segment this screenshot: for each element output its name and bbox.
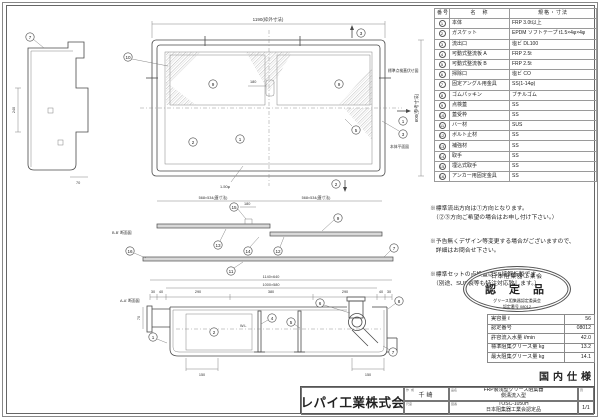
callout-11: 11 [227, 267, 235, 275]
plan-width-dim: 1190(枠外寸法) [253, 16, 284, 23]
part-spec: 塩ビ DL100 [510, 39, 597, 49]
side-view: 7 240 70 [12, 33, 88, 185]
flow-arrow-3: 3 [350, 25, 365, 38]
part-spec: SUS [510, 121, 597, 131]
flow-arrow-2: 2 [332, 180, 347, 192]
plan-view: 180 1-50φ 1190(枠外寸法) 600(参考寸法) 標準点検蓋伏せ図 … [124, 16, 424, 201]
stamp-number: 認定番号 08012 [464, 304, 570, 310]
inlet-height-dim: 70 [137, 316, 141, 320]
parts-table-row: 12 ボルト止材 SS [435, 131, 597, 141]
domestic-spec-label: 国内仕様 [470, 368, 595, 383]
parts-table-row: 14 取手 SS [435, 151, 597, 161]
body-section-label: A-A' 断面図 [120, 298, 140, 303]
part-spec: SS [510, 161, 597, 171]
lid-section-view: B-B' 断面図 180 15 13 14 12 9 16 11 7 [112, 202, 398, 275]
inner-dim: 1000×580 [263, 283, 280, 287]
svg-text:16: 16 [127, 249, 133, 254]
parts-table-row: 7 固定アングル用金具 SS(1-14φ) [435, 80, 597, 90]
callout-1-section: 1 [149, 333, 157, 341]
flow-arrow-1: 1 [397, 109, 411, 125]
part-number-badge: 2 [439, 30, 446, 37]
spec-table: 実容量 ℓ 56 認定番号 08012 許容流入水量 ℓ/min 42.0 標準… [487, 314, 595, 363]
callout-6-section: 6 [316, 299, 324, 307]
svg-text:1: 1 [239, 137, 242, 142]
part-name: ゴムパッキン [450, 90, 510, 100]
lid-dim-right: 568×534(蓋寸法) [302, 195, 332, 200]
parts-table-row: 5 可動式整流板 B FRP 2.5t [435, 59, 597, 69]
page-cell: 1/1 [578, 401, 594, 415]
svg-text:9: 9 [212, 82, 215, 87]
part-name: 埋込式取手 [450, 161, 510, 171]
part-number-badge: 6 [439, 71, 446, 78]
spec-value: 14.1 [565, 353, 595, 363]
spec-label: 実容量 ℓ [488, 315, 565, 325]
part-number-badge: 15 [439, 163, 446, 170]
product-line2: 側溝流入型 [501, 394, 526, 400]
seg-dim: 380 [268, 290, 274, 294]
part-spec: 塩ビ CO [510, 70, 597, 80]
svg-text:9: 9 [338, 82, 341, 87]
water-line-label: W.L [240, 324, 247, 328]
svg-text:10: 10 [125, 55, 131, 60]
seg-dim: 290 [195, 290, 201, 294]
right-pit-dim: 150 [365, 373, 371, 377]
parts-table-row: 2 ガスケット EPDM ソフトテープ t1.5×4φ×4φ [435, 29, 597, 39]
svg-text:7: 7 [393, 246, 396, 251]
parts-table-row: 9 点検蓋 SS [435, 100, 597, 110]
part-name: ボルト止材 [450, 131, 510, 141]
callout-10: 10 [124, 53, 132, 61]
part-spec: SS [510, 100, 597, 110]
callout-2: 2 [189, 138, 197, 146]
left-pit-dim: 150 [199, 373, 205, 377]
callout-7-side: 7 [26, 33, 34, 41]
callout-13: 13 [214, 241, 222, 249]
callout-7-section: 7 [389, 348, 397, 356]
side-depth-dim: 240 [12, 107, 16, 113]
part-number-badge: 3 [439, 41, 446, 48]
parts-table-row: 1 本体 FRP 3.0t以上 [435, 19, 597, 29]
product-name-cell: 品名 FRP製浅型グリース阻集器 側溝流入型 [449, 387, 578, 401]
outer-dim: 1140×640 [263, 275, 280, 279]
part-spec: EPDM ソフトテープ t1.5×4φ×4φ [510, 29, 597, 39]
svg-text:3: 3 [402, 132, 405, 137]
part-number-badge: 13 [439, 143, 446, 150]
callout-1: 1 [236, 135, 244, 143]
company-logo: プレパイ工業株式会社 [301, 387, 404, 415]
spec-value: 08012 [565, 324, 595, 334]
part-name: 本体 [450, 19, 510, 29]
page-number: 1/1 [582, 405, 590, 411]
svg-text:11: 11 [229, 269, 234, 274]
certification-stamp: 日本阻集器工業会 認 定 品 グリース阻集器認定委員会 認定番号 08012 [463, 266, 571, 312]
part-number-badge: 7 [439, 81, 446, 88]
seg-dim: 40 [379, 290, 383, 294]
parts-table: 番号 名 称 規格・寸法 1 本体 FRP 3.0t以上 2 ガスケット EPD… [434, 8, 597, 182]
svg-text:4: 4 [271, 316, 274, 321]
spec-value: 56 [565, 315, 595, 325]
part-number-badge: 9 [439, 102, 446, 109]
svg-text:1: 1 [402, 119, 405, 124]
svg-text:8: 8 [398, 299, 401, 304]
spec-value: 13.2 [565, 343, 595, 353]
parts-table-row: 6 掃除口 塩ビ CO [435, 70, 597, 80]
right-panel: 番号 名 称 規格・寸法 1 本体 FRP 3.0t以上 2 ガスケット EPD… [430, 8, 596, 182]
svg-text:2: 2 [192, 140, 195, 145]
spec-table-row: 実容量 ℓ 56 [488, 315, 595, 325]
callout-9-left: 9 [209, 80, 217, 88]
drawn-label: 作成 [406, 389, 416, 392]
part-name: 可動式整流板 B [450, 59, 510, 69]
part-spec: SS [510, 131, 597, 141]
callout-3: 3 [399, 130, 407, 138]
stamp-association: 日本阻集器工業会 [464, 272, 570, 280]
callout-5: 5 [352, 126, 360, 134]
part-spec: SS(1-14φ) [510, 80, 597, 90]
plan-handle-dim: 180 [250, 80, 256, 84]
lid-handle-dim: 180 [244, 202, 250, 206]
part-name: 可動式整流板 A [450, 49, 510, 59]
parts-header-spec: 規格・寸法 [510, 9, 597, 19]
callout-9-section: 9 [334, 214, 342, 222]
parts-table-row: 11 バー材 SUS [435, 121, 597, 131]
svg-text:15: 15 [231, 205, 237, 210]
callout-8-section: 8 [395, 297, 403, 305]
note-flow-direction: ※標準流出方向は①方向となります。 （②③方向ご希望の場合はお申し付け下さい。） [430, 205, 598, 223]
body-section-view: 1140×640 1000×580 30 40 290 380 290 40 3… [120, 275, 403, 377]
title-block: プレパイ工業株式会社 作成 千崎 品名 FRP製浅型グリース阻集器 側溝流入型 … [300, 386, 595, 414]
parts-table-row: 13 補強材 SS [435, 141, 597, 151]
certification-text: 日本阻集器工業会認定品 [486, 408, 541, 414]
page-label: 頁 [580, 389, 583, 392]
spec-value: 42.0 [565, 334, 595, 344]
part-name: ガスケット [450, 29, 510, 39]
scale-label: 尺度 [406, 403, 412, 406]
spec-label: 認定番号 [488, 324, 565, 334]
svg-text:6: 6 [319, 301, 322, 306]
callout-2-section: 2 [210, 328, 218, 336]
part-spec: SS [510, 172, 597, 182]
part-name: 取手 [450, 151, 510, 161]
drawn-name: 千崎 [418, 390, 434, 399]
seg-dim: 30 [387, 290, 391, 294]
plan-height-dim: 600(参考寸法) [413, 93, 420, 122]
part-number-badge: 4 [439, 51, 446, 58]
svg-text:9: 9 [337, 216, 340, 221]
part-name: 流出口 [450, 39, 510, 49]
part-spec: ブチルゴム [510, 90, 597, 100]
part-spec: SS [510, 110, 597, 120]
side-bottom-dim: 70 [76, 181, 80, 185]
part-spec: FRP 3.0t以上 [510, 19, 597, 29]
part-name: 補強材 [450, 141, 510, 151]
callout-5-section: 5 [287, 318, 295, 326]
callout-9-right: 9 [335, 80, 343, 88]
page-label-cell: 頁 [578, 387, 594, 401]
lid-dim-left: 568×534(蓋寸法) [199, 195, 229, 200]
part-number-badge: 12 [439, 132, 446, 139]
spec-label: 最大阻集グリース量 kg [488, 353, 565, 363]
drawing-sheet: 180 1-50φ 1190(枠外寸法) 600(参考寸法) 標準点検蓋伏せ図 … [0, 0, 600, 419]
part-number-badge: 8 [439, 92, 446, 99]
part-spec: SS [510, 151, 597, 161]
lid-section-label: B-B' 断面図 [112, 230, 132, 235]
parts-table-row: 4 可動式整流板 A FRP 2.5t [435, 49, 597, 59]
svg-text:3: 3 [360, 31, 363, 36]
svg-text:14: 14 [245, 249, 251, 254]
body-plan-label: 本体平面図 [390, 144, 409, 149]
drawn-by-cell: 作成 千崎 [404, 387, 449, 401]
parts-table-row: 16 アンカー用固定金具 SS [435, 172, 597, 182]
drawing-no-label: 図番 [451, 403, 457, 406]
stamp-title: 認 定 品 [464, 281, 570, 297]
part-spec: SS [510, 141, 597, 151]
plan-hole-note: 1-50φ [220, 185, 231, 189]
seg-dim: 40 [159, 290, 163, 294]
parts-header-no: 番号 [435, 9, 450, 19]
part-spec: FRP 2.5t [510, 59, 597, 69]
callout-7-bar: 7 [390, 244, 398, 252]
part-name: アンカー用固定金具 [450, 172, 510, 182]
svg-text:13: 13 [215, 243, 221, 248]
svg-text:1: 1 [152, 335, 155, 340]
parts-table-row: 15 埋込式取手 SS [435, 161, 597, 171]
spec-table-row: 標準阻集グリース量 kg 13.2 [488, 343, 595, 353]
callout-4-section: 4 [268, 314, 276, 322]
callout-12: 12 [274, 247, 282, 255]
svg-text:2: 2 [213, 330, 216, 335]
part-spec: FRP 2.5t [510, 49, 597, 59]
note-design-change: ※予告無くデザイン等変更する場合がございますので、 詳細はお問合せ下さい。 [430, 238, 598, 256]
parts-table-row: 10 蓋受枠 SS [435, 110, 597, 120]
parts-table-row: 3 流出口 塩ビ DL100 [435, 39, 597, 49]
part-number-badge: 11 [439, 122, 446, 129]
part-name: バー材 [450, 121, 510, 131]
spec-label: 標準阻集グリース量 kg [488, 343, 565, 353]
part-number-badge: 10 [439, 112, 446, 119]
drawing-number-cell: 図番 TOSC-1050H 日本阻集器工業会認定品 [449, 401, 578, 415]
lid-plan-label: 標準点検蓋伏せ図 [388, 68, 419, 73]
svg-text:5: 5 [355, 128, 358, 133]
svg-text:7: 7 [392, 350, 395, 355]
part-name: 固定アングル用金具 [450, 80, 510, 90]
parts-header-name: 名 称 [450, 9, 510, 19]
callout-15: 15 [230, 203, 238, 211]
svg-text:7: 7 [29, 35, 32, 40]
spec-table-row: 許容流入水量 ℓ/min 42.0 [488, 334, 595, 344]
svg-text:5: 5 [290, 320, 293, 325]
callout-14: 14 [244, 247, 252, 255]
spec-label: 許容流入水量 ℓ/min [488, 334, 565, 344]
part-number-badge: 5 [439, 61, 446, 68]
part-name: 蓋受枠 [450, 110, 510, 120]
callout-16: 16 [126, 247, 134, 255]
svg-text:12: 12 [275, 249, 281, 254]
seg-dim: 30 [151, 290, 155, 294]
spec-table-row: 認定番号 08012 [488, 324, 595, 334]
scale-cell: 尺度 [404, 401, 449, 415]
part-number-badge: 16 [439, 173, 446, 180]
part-number-badge: 1 [439, 20, 446, 27]
part-name: 掃除口 [450, 70, 510, 80]
spec-table-row: 最大阻集グリース量 kg 14.1 [488, 353, 595, 363]
parts-table-row: 8 ゴムパッキン ブチルゴム [435, 90, 597, 100]
seg-dim: 290 [342, 290, 348, 294]
product-label: 品名 [451, 389, 457, 392]
part-name: 点検蓋 [450, 100, 510, 110]
svg-text:2: 2 [335, 182, 338, 187]
part-number-badge: 14 [439, 153, 446, 160]
